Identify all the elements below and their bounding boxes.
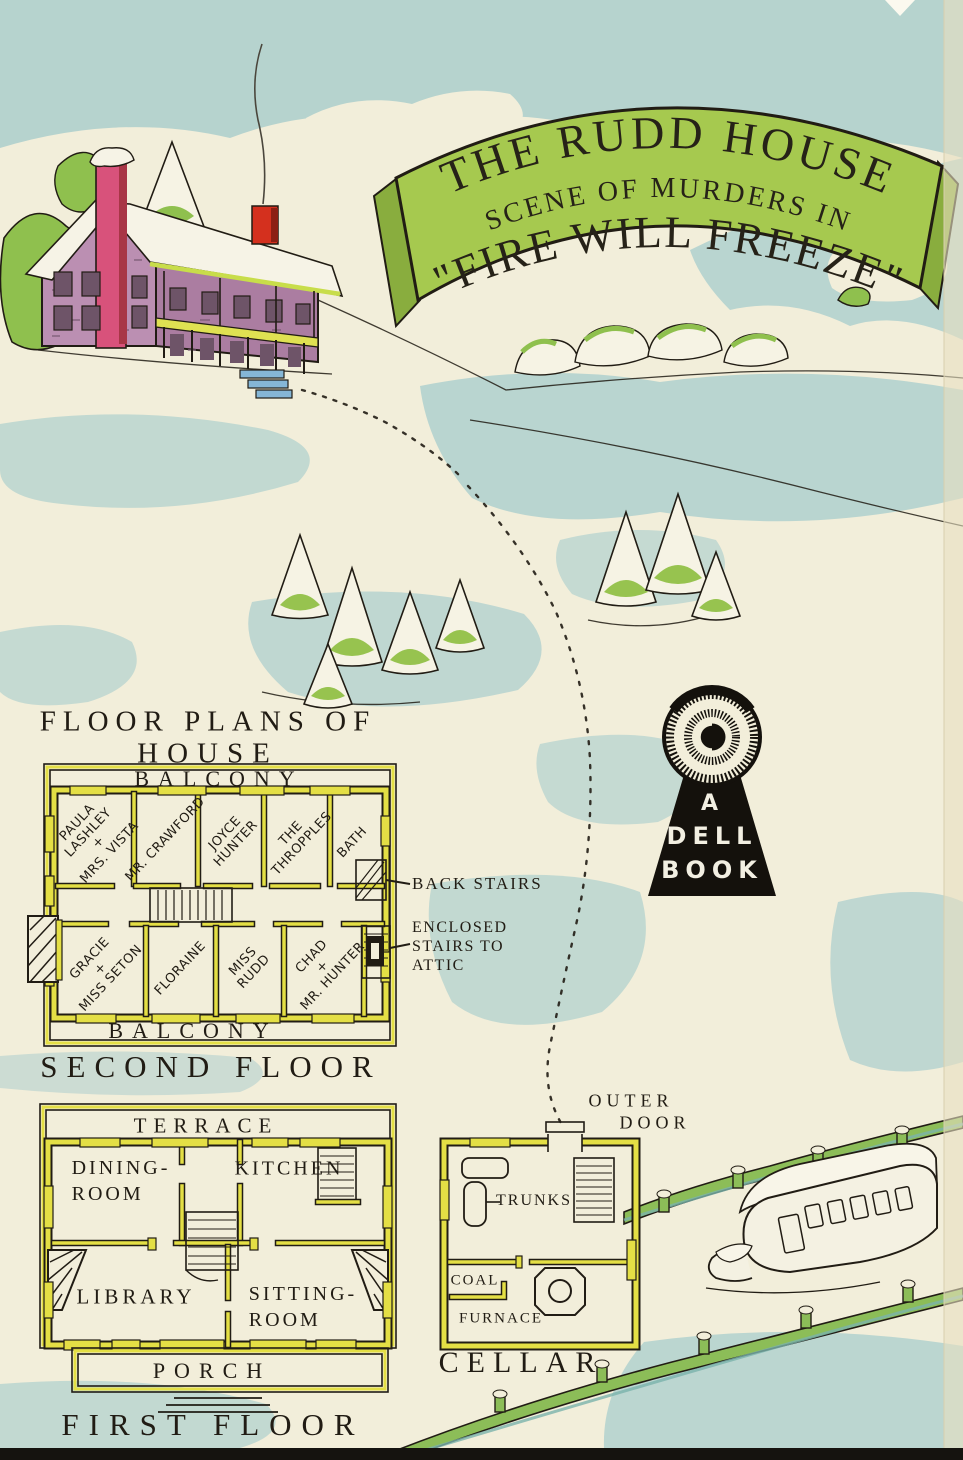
logo-line-1: A — [701, 791, 723, 816]
logo-line-2: DELL — [667, 822, 758, 850]
logo-line-3: BOOK — [661, 856, 763, 884]
chimney-snow-cap — [90, 148, 134, 167]
trunks — [462, 1158, 508, 1226]
book-cover: THE RUDD HOUSE SCENE OF MURDERS IN "FIRE… — [0, 0, 963, 1460]
second-floor-fireplace — [28, 916, 62, 982]
first-floor-back-stairs — [318, 1148, 358, 1202]
second-floor-stairs — [150, 888, 232, 922]
cover-illustration: THE RUDD HOUSE SCENE OF MURDERS IN "FIRE… — [0, 0, 963, 1460]
second-floor-plan — [28, 764, 410, 1046]
furnace-symbol — [535, 1268, 585, 1315]
first-floor-plan — [40, 1104, 396, 1412]
stone-steps — [240, 370, 292, 398]
cellar-plan — [440, 1122, 636, 1346]
cellar-stairs — [574, 1158, 614, 1222]
